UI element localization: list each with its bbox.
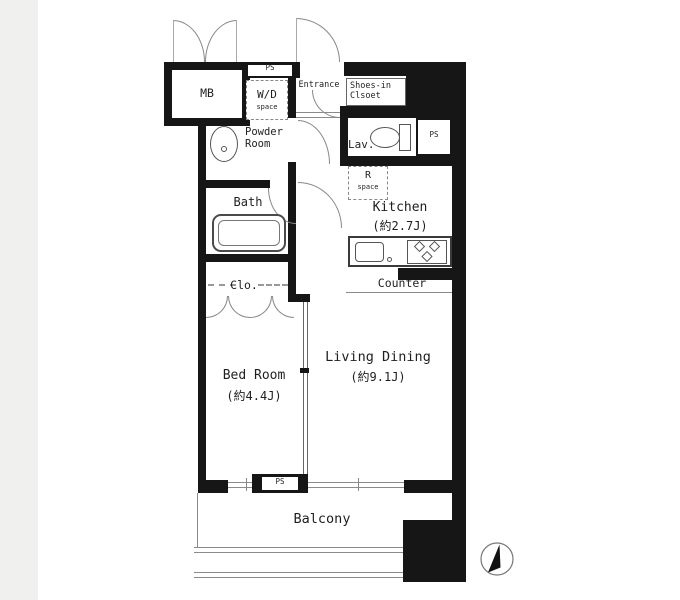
- room-label-kitchen: Kitchen: [354, 201, 446, 215]
- wall: [344, 62, 408, 76]
- label-counter: Counter: [358, 277, 446, 290]
- wall: [344, 156, 456, 166]
- washbasin-drain-icon: [221, 146, 227, 152]
- faucet-icon: [387, 257, 392, 262]
- label-r-space: space: [348, 184, 388, 192]
- wall: [198, 254, 296, 262]
- north-arrow-icon: [479, 541, 515, 577]
- label-wd-space: space: [246, 104, 288, 112]
- balcony-side-line: [197, 493, 198, 547]
- room-label-bath: Bath: [222, 196, 274, 209]
- door-arc-powder-room: [298, 120, 330, 164]
- wall: [198, 480, 228, 493]
- sliding-door-line: [307, 302, 308, 474]
- wall: [198, 122, 206, 493]
- wall: [164, 118, 250, 126]
- wall: [404, 480, 454, 493]
- door-arc-entrance: [296, 18, 340, 62]
- room-label-bedroom: Bed Room: [208, 369, 300, 383]
- label-ps-bottom: PS: [262, 478, 298, 486]
- bathtub-inner-icon: [218, 220, 280, 246]
- wall: [344, 106, 458, 118]
- label-wd: W/D: [246, 89, 288, 101]
- label-shoes-line1: Shoes-in: [350, 82, 404, 91]
- sliding-door-line: [303, 302, 304, 474]
- room-label-lav: Lav.: [348, 139, 384, 151]
- door-arc-mb-left: [173, 20, 205, 62]
- room-size-kitchen: (約2.7J): [354, 220, 446, 233]
- door-arc-mb-right: [205, 20, 237, 62]
- balcony-rail-line: [194, 547, 404, 548]
- window-tick: [358, 478, 359, 491]
- room-label-entrance: Entrance: [294, 81, 344, 90]
- page-margin: [0, 0, 38, 600]
- stove-icon: [407, 240, 447, 264]
- wall: [198, 180, 270, 188]
- room-label-balcony: Balcony: [278, 512, 366, 527]
- balcony-rail-line: [194, 577, 404, 578]
- toilet-tank-icon: [399, 124, 411, 151]
- wall-pillar: [403, 520, 466, 582]
- closet-door-arc: [228, 296, 250, 318]
- room-size-bedroom: (約4.4J): [208, 390, 300, 403]
- sliding-door-handle: [300, 368, 309, 373]
- balcony-rail-line: [194, 552, 404, 553]
- room-label-living: Living Dining: [314, 350, 442, 365]
- wall: [452, 62, 466, 520]
- closet-door-arc: [250, 296, 272, 318]
- balcony-rail-line: [194, 572, 404, 573]
- door-arc-living: [298, 182, 342, 228]
- window-tick: [246, 478, 247, 491]
- room-label-closet: Clo.: [224, 279, 264, 292]
- floorplan-canvas: MB PS W/D space Entrance Shoes-in Clsoet…: [0, 0, 680, 600]
- closet-door-arc: [206, 296, 228, 318]
- washbasin-icon: [210, 126, 238, 162]
- closet-door-arc: [272, 296, 294, 318]
- room-size-living: (約9.1J): [314, 371, 442, 384]
- label-ps-right: PS: [416, 131, 452, 139]
- label-r: R: [348, 170, 388, 181]
- label-shoes-line2: Clsoet: [350, 92, 404, 101]
- room-label-powder-line1: Powder: [245, 127, 291, 139]
- door-arc-genkan: [312, 90, 340, 118]
- room-label-mb: MB: [172, 87, 242, 100]
- room-label-powder-line2: Room: [245, 139, 291, 151]
- counter-edge-line: [346, 292, 454, 293]
- kitchen-sink-icon: [355, 242, 384, 262]
- label-ps-top: PS: [248, 64, 292, 72]
